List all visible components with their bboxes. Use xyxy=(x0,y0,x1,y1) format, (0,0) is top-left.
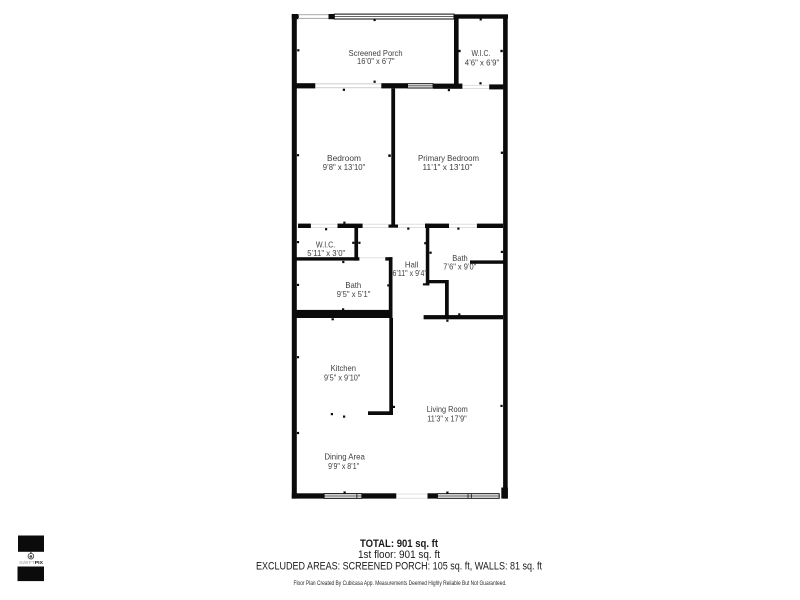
svg-text:Living Room: Living Room xyxy=(427,404,468,414)
svg-text:5’11" x 3’0": 5’11" x 3’0" xyxy=(307,249,345,258)
svg-text:EXCLUDED AREAS: SCREENED PORCH: EXCLUDED AREAS: SCREENED PORCH: 105 sq. … xyxy=(256,561,543,573)
svg-text:9’5" x 5’1": 9’5" x 5’1" xyxy=(337,290,371,299)
svg-text:4’6" x 6’9": 4’6" x 6’9" xyxy=(465,58,500,67)
svg-text:Hall: Hall xyxy=(405,260,419,270)
svg-text:9’9" x 8’1": 9’9" x 8’1" xyxy=(328,461,359,471)
svg-text:9’8" x 13’10": 9’8" x 13’10" xyxy=(323,162,366,172)
svg-text:1st floor: 901 sq. ft: 1st floor: 901 sq. ft xyxy=(358,549,440,561)
svg-text:Kitchen: Kitchen xyxy=(331,363,356,373)
svg-text:9’5" x 9’10": 9’5" x 9’10" xyxy=(324,373,360,383)
svg-text:SWIFTPIX: SWIFTPIX xyxy=(19,560,44,565)
svg-text:Dining Area: Dining Area xyxy=(324,452,365,462)
svg-text:Bath: Bath xyxy=(345,280,361,290)
svg-text:16’0" x 6’7": 16’0" x 6’7" xyxy=(357,57,395,66)
svg-text:7’6" x 9’0": 7’6" x 9’0" xyxy=(443,263,476,272)
svg-text:Bath: Bath xyxy=(452,253,468,263)
svg-text:11’3" x 17’9": 11’3" x 17’9" xyxy=(427,414,467,424)
svg-text:11’1" x 13’10": 11’1" x 13’10" xyxy=(423,162,473,172)
svg-text:6’11" x 9’4": 6’11" x 9’4" xyxy=(392,269,427,278)
svg-text:W.I.C.: W.I.C. xyxy=(472,48,491,58)
svg-text:Floor Plan Created By Cubicasa: Floor Plan Created By Cubicasa App. Meas… xyxy=(294,581,507,587)
